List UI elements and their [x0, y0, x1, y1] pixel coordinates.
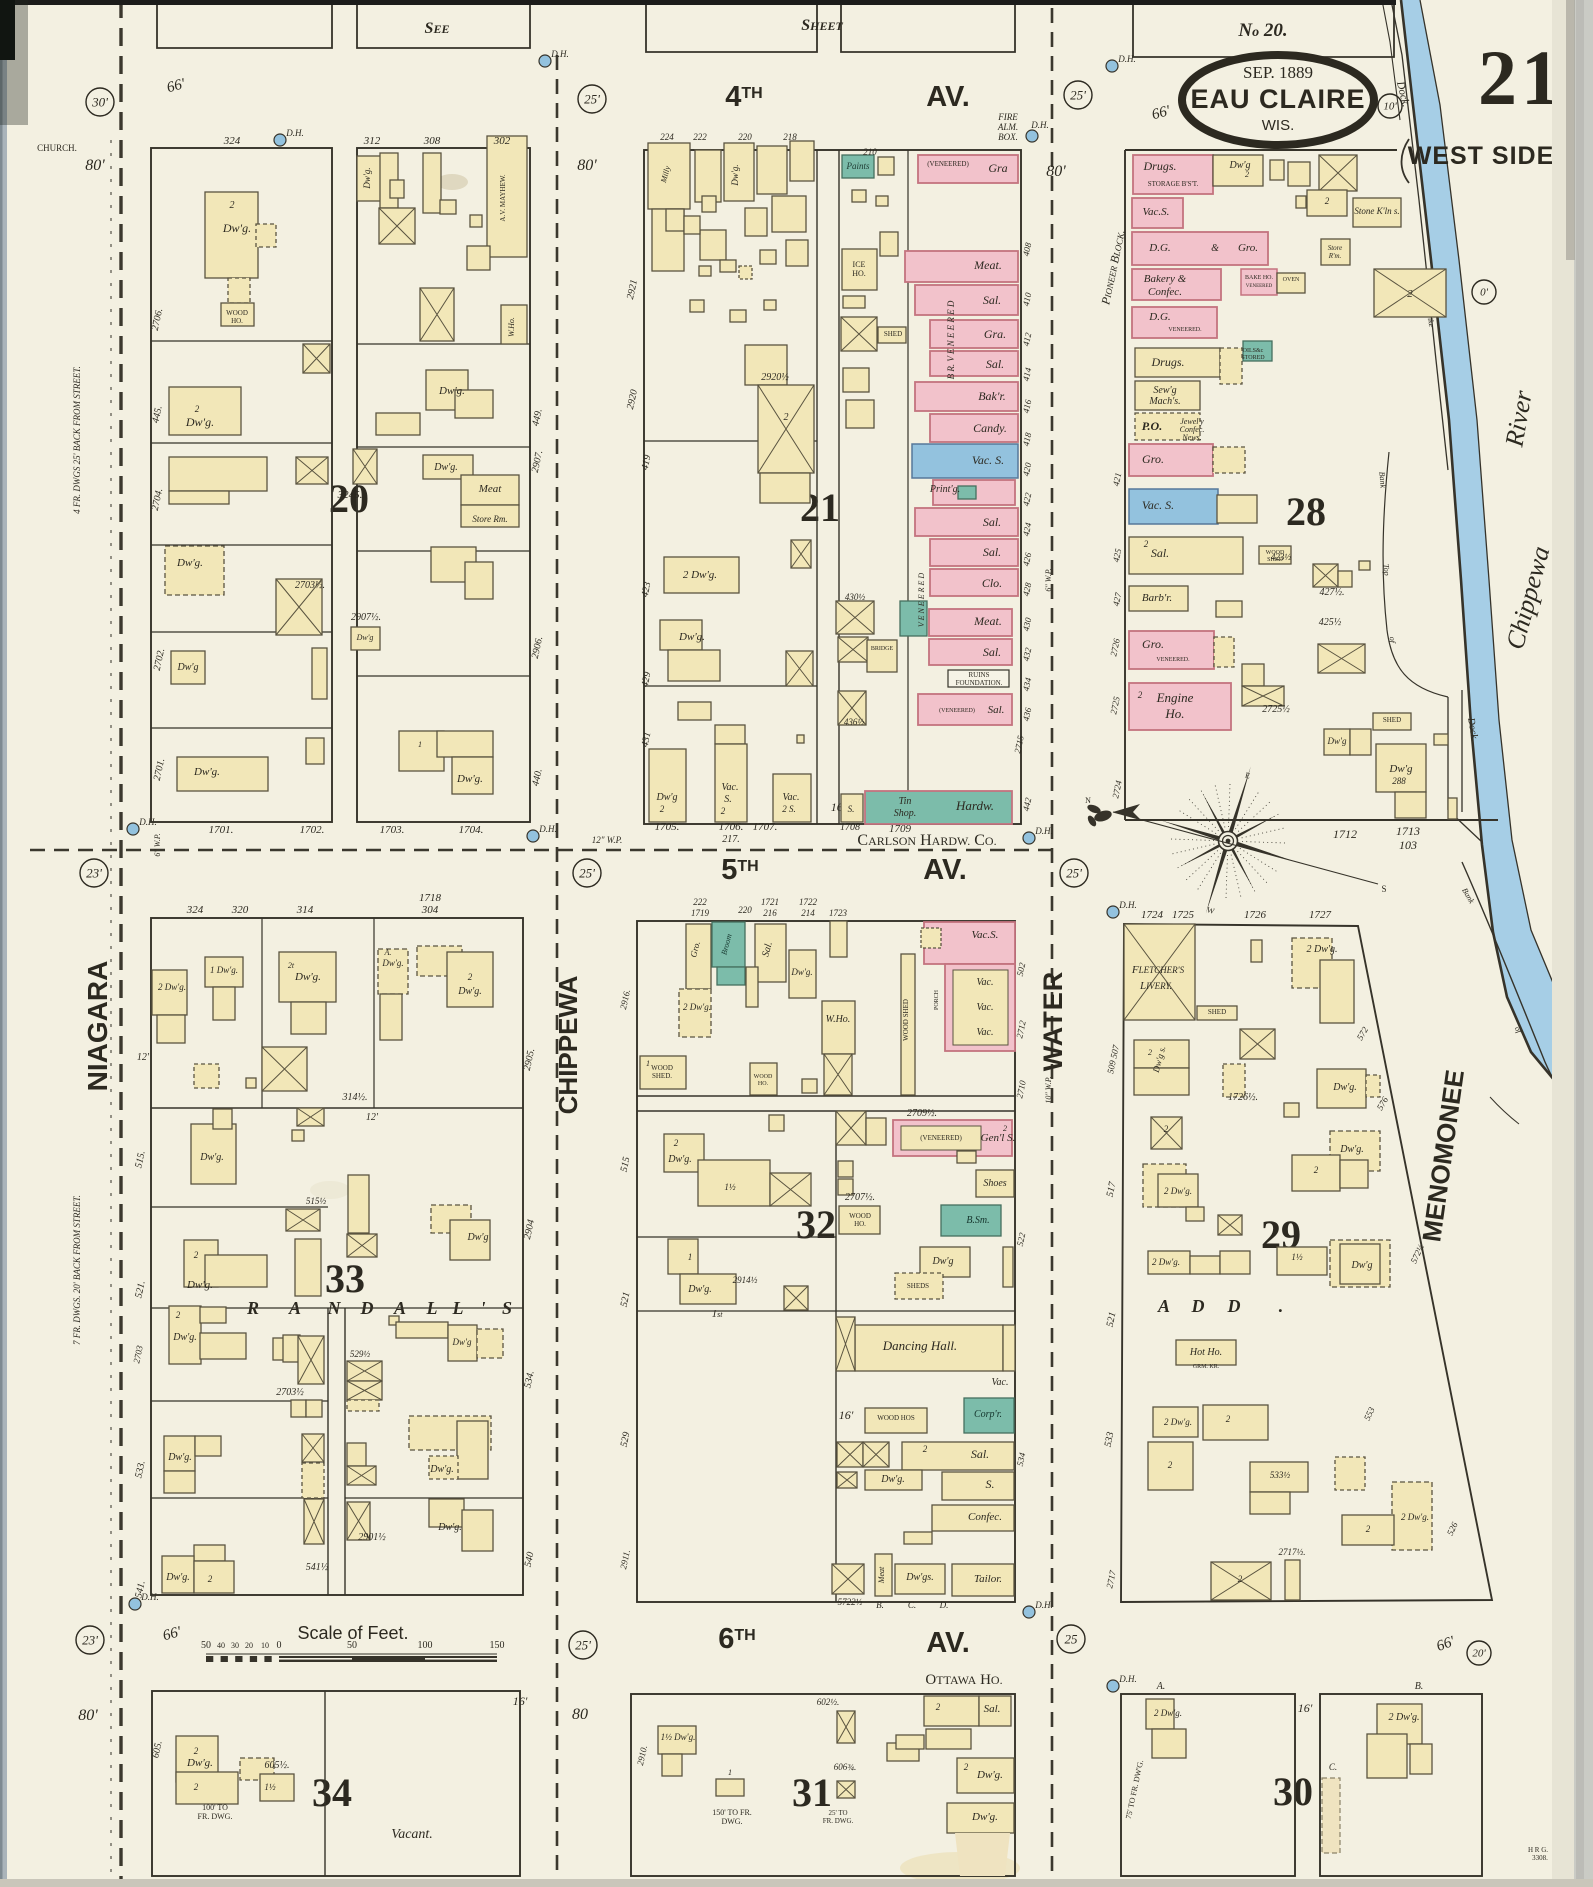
svg-text:288: 288 [1392, 776, 1406, 786]
svg-text:1 Dw'g.: 1 Dw'g. [210, 965, 238, 975]
svg-text:541½: 541½ [306, 1562, 329, 1573]
svg-text:V E N E E R E D: V E N E E R E D [917, 573, 926, 628]
svg-text:324: 324 [186, 904, 204, 916]
svg-text:AV.: AV. [926, 81, 970, 113]
svg-text:1706.: 1706. [719, 821, 744, 833]
svg-text:S.: S. [986, 1477, 995, 1491]
svg-text:WOOD: WOOD [849, 1212, 871, 1220]
svg-text:1: 1 [418, 740, 422, 749]
svg-text:12': 12' [366, 1112, 379, 1123]
svg-text:Engine: Engine [1156, 690, 1194, 705]
svg-text:23': 23' [86, 865, 102, 880]
svg-text:1723: 1723 [829, 908, 848, 918]
svg-text:Clo.: Clo. [982, 576, 1002, 590]
svg-text:N: N [1085, 796, 1091, 805]
svg-text:Sal.: Sal. [984, 1703, 1001, 1715]
svg-text:FIRE: FIRE [997, 112, 1018, 122]
svg-text:B R. V E N E E R E D: B R. V E N E E R E D [946, 300, 956, 379]
svg-text:150' TO FR.: 150' TO FR. [712, 1808, 752, 1817]
svg-text:2: 2 [230, 200, 235, 211]
svg-text:10" W.P.: 10" W.P. [1044, 1076, 1053, 1103]
svg-text:10: 10 [261, 1641, 269, 1650]
svg-text:2 Dw'g.: 2 Dw'g. [1306, 944, 1337, 955]
svg-text:Sal.: Sal. [1151, 546, 1169, 560]
svg-text:33: 33 [325, 1256, 365, 1301]
svg-text:1725: 1725 [1172, 909, 1195, 921]
svg-text:40: 40 [217, 1641, 225, 1650]
svg-text:2: 2 [784, 412, 789, 423]
svg-text:Vac.: Vac. [977, 1027, 994, 1038]
svg-text:222: 222 [693, 132, 707, 142]
svg-text:214: 214 [801, 908, 815, 918]
svg-text:SHED: SHED [1383, 716, 1401, 724]
svg-text:25': 25' [1066, 865, 1082, 880]
svg-text:304: 304 [421, 904, 439, 916]
svg-text:No 20.: No 20. [1237, 20, 1287, 41]
svg-text:WOOD: WOOD [226, 309, 248, 317]
svg-text:VENEERED: VENEERED [1246, 284, 1273, 289]
svg-text:B.Sm.: B.Sm. [966, 1215, 989, 1226]
svg-text:S: S [1381, 884, 1386, 894]
svg-text:Vac.: Vac. [722, 782, 739, 793]
svg-text:VENEERED.: VENEERED. [1168, 327, 1202, 333]
svg-text:2717½.: 2717½. [1279, 1547, 1306, 1557]
svg-text:10': 10' [1383, 101, 1397, 113]
svg-text:308: 308 [423, 135, 441, 147]
svg-text:Dancing Hall.: Dancing Hall. [882, 1338, 957, 1353]
svg-text:12': 12' [137, 1052, 150, 1063]
svg-text:2: 2 [964, 1762, 969, 1772]
svg-text:Dw'g.: Dw'g. [172, 1332, 197, 1343]
svg-text:Dw'g: Dw'g [1350, 1260, 1372, 1271]
svg-text:Dw'g.: Dw'g. [667, 1154, 692, 1165]
svg-text:Shop.: Shop. [894, 808, 917, 819]
svg-text:16': 16' [839, 1408, 854, 1422]
svg-text:2: 2 [1407, 288, 1413, 300]
svg-text:2: 2 [1138, 690, 1143, 700]
svg-text:S.: S. [848, 804, 855, 814]
svg-text:Vac.: Vac. [977, 977, 994, 988]
svg-text:PORCH: PORCH [934, 989, 940, 1010]
svg-text:RUINS: RUINS [968, 671, 989, 679]
svg-text:302: 302 [493, 135, 511, 147]
svg-text:Sal.: Sal. [983, 515, 1001, 529]
svg-text:Sal.: Sal. [983, 293, 1001, 307]
svg-text:Meat.: Meat. [973, 614, 1002, 628]
svg-text:D.H.: D.H. [1118, 900, 1137, 910]
svg-text:3308.: 3308. [1532, 1854, 1548, 1862]
svg-text:1704.: 1704. [459, 824, 484, 836]
svg-text:32: 32 [796, 1202, 836, 1247]
svg-text:Print'g.: Print'g. [929, 484, 960, 495]
svg-text:2: 2 [1168, 1460, 1173, 1470]
svg-text:Dw'g.: Dw'g. [456, 773, 483, 785]
svg-text:2709½.: 2709½. [907, 1108, 937, 1119]
svg-text:WOOD: WOOD [651, 1064, 673, 1072]
svg-text:427½.: 427½. [1320, 587, 1345, 598]
svg-text:A.V. MAYHEW.: A.V. MAYHEW. [499, 174, 507, 221]
svg-text:LIVERY.: LIVERY. [1139, 980, 1172, 992]
svg-text:D.H.: D.H. [1118, 1674, 1137, 1684]
svg-text:2: 2 [1245, 170, 1249, 179]
svg-text:ICE: ICE [853, 260, 866, 269]
svg-text:25' TO: 25' TO [828, 1809, 847, 1817]
svg-text:R'm.: R'm. [1328, 252, 1342, 260]
svg-text:425½: 425½ [1319, 617, 1342, 628]
svg-text:2: 2 [195, 404, 200, 414]
svg-text:Dw'g.: Dw'g. [429, 1464, 454, 1475]
svg-text:Dw'g.: Dw'g. [437, 1522, 462, 1533]
svg-text:Bank: Bank [1377, 471, 1387, 489]
svg-text:2: 2 [721, 806, 726, 816]
svg-text:Dw'gs.: Dw'gs. [905, 1572, 933, 1583]
svg-text:80': 80' [1046, 163, 1066, 180]
svg-text:12" W.P.: 12" W.P. [592, 835, 623, 845]
svg-text:2 Dw'g.: 2 Dw'g. [1154, 1708, 1182, 1718]
svg-text:2: 2 [194, 1746, 199, 1756]
svg-text:2: 2 [194, 1782, 199, 1792]
svg-text:Vacant.: Vacant. [391, 1827, 433, 1842]
svg-text:B.: B. [1415, 1681, 1424, 1692]
svg-text:Dw'g.: Dw'g. [185, 415, 214, 429]
svg-text:2: 2 [1325, 196, 1330, 206]
svg-text:Vac.: Vac. [977, 1002, 994, 1013]
svg-text:0: 0 [277, 1640, 282, 1651]
svg-text:CHIPPEWA: CHIPPEWA [553, 975, 583, 1114]
svg-text:Dw'g.: Dw'g. [165, 1572, 190, 1583]
svg-text:(VENEERED): (VENEERED) [920, 1134, 962, 1142]
svg-text:NIAGARA: NIAGARA [82, 961, 113, 1092]
svg-text:210: 210 [863, 147, 877, 157]
svg-text:25: 25 [1065, 1631, 1079, 1646]
svg-text:2: 2 [674, 1138, 679, 1148]
svg-text:Hardw.: Hardw. [955, 798, 994, 813]
svg-text:20: 20 [245, 1641, 253, 1650]
svg-text:STORAGE B'S'T.: STORAGE B'S'T. [1148, 180, 1199, 188]
svg-text:80': 80' [85, 157, 105, 174]
svg-text:224: 224 [660, 132, 674, 142]
svg-text:Vac.S.: Vac.S. [972, 929, 999, 941]
svg-text:1703.: 1703. [380, 824, 405, 836]
svg-text:1: 1 [688, 1252, 693, 1262]
svg-text:Ho.: Ho. [1164, 706, 1184, 721]
svg-text:C.: C. [1329, 1762, 1337, 1772]
svg-text:25': 25' [575, 1637, 591, 1652]
svg-text:2: 2 [660, 804, 665, 814]
svg-text:533½: 533½ [1270, 1470, 1291, 1480]
svg-text:OILS&c: OILS&c [1243, 348, 1264, 354]
svg-text:5722½: 5722½ [838, 1597, 863, 1607]
svg-text:Gro.: Gro. [1238, 242, 1258, 254]
svg-text:Corp'r.: Corp'r. [974, 1409, 1002, 1420]
svg-text:1½: 1½ [264, 1782, 276, 1792]
svg-text:EAU CLAIRE: EAU CLAIRE [1190, 84, 1365, 114]
svg-text:VENEERED.: VENEERED. [1156, 657, 1190, 663]
svg-text:1719: 1719 [691, 908, 710, 918]
svg-text:2 S.: 2 S. [782, 804, 796, 814]
svg-text:1705.: 1705. [655, 821, 680, 833]
svg-text:Gen'l S.: Gen'l S. [981, 1132, 1016, 1144]
svg-text:Dw'g.: Dw'g. [167, 1452, 192, 1463]
svg-text:Dw'g: Dw'g [1388, 763, 1413, 775]
svg-text:HO.: HO. [852, 269, 866, 278]
svg-text:Sal.: Sal. [983, 545, 1001, 559]
svg-text:Meat: Meat [478, 483, 503, 495]
svg-text:D.H.: D.H. [1034, 1600, 1053, 1610]
svg-text:Tailor.: Tailor. [974, 1573, 1002, 1585]
svg-text:6" W.P.: 6" W.P. [153, 833, 162, 856]
svg-text:2: 2 [1238, 1574, 1243, 1584]
svg-text:1722: 1722 [799, 897, 818, 907]
svg-text:OTTAWA HO.: OTTAWA HO. [925, 1672, 1002, 1688]
svg-text:100: 100 [418, 1640, 433, 1651]
svg-text:Sal.: Sal. [971, 1447, 989, 1461]
svg-text:103: 103 [1399, 838, 1417, 852]
svg-text:Bakery &: Bakery & [1144, 273, 1187, 285]
svg-text:2703½: 2703½ [276, 1387, 304, 1398]
svg-text:1726½.: 1726½. [1228, 1092, 1258, 1103]
svg-text:Drugs.: Drugs. [1142, 159, 1176, 173]
svg-text:6" W.P.: 6" W.P. [1044, 568, 1053, 591]
svg-text:436½: 436½ [844, 717, 865, 727]
svg-text:Dw'g.: Dw'g. [438, 385, 465, 397]
svg-text:Tin: Tin [899, 796, 912, 807]
svg-text:2: 2 [194, 1250, 199, 1260]
svg-text:D.H.: D.H. [285, 128, 304, 138]
svg-text:218: 218 [783, 132, 797, 142]
svg-text:2707½.: 2707½. [845, 1192, 875, 1203]
svg-text:Candy.: Candy. [973, 421, 1007, 435]
svg-text:2: 2 [1003, 1124, 1007, 1133]
svg-text:Dw'g: Dw'g [356, 633, 374, 642]
svg-text:D.G.: D.G. [1148, 242, 1170, 254]
svg-text:Paints: Paints [845, 161, 869, 171]
svg-text:AV.: AV. [926, 1627, 970, 1659]
svg-text:1726: 1726 [1244, 909, 1267, 921]
svg-text:Dw'g.: Dw'g. [199, 1152, 224, 1163]
svg-text:217.: 217. [722, 834, 740, 845]
svg-text:2907½.: 2907½. [351, 612, 381, 623]
svg-text:CARLSON HARDW. CO.: CARLSON HARDW. CO. [857, 832, 996, 849]
svg-text:2 Dw'g.: 2 Dw'g. [158, 982, 186, 992]
svg-text:34: 34 [312, 1770, 352, 1815]
svg-text:Dw'g.: Dw'g. [880, 1474, 905, 1485]
svg-text:(VENEERED): (VENEERED) [927, 160, 969, 168]
svg-text:1½: 1½ [1291, 1252, 1303, 1262]
svg-text:A: A [1157, 1296, 1170, 1316]
svg-text:2914½: 2914½ [733, 1275, 758, 1285]
svg-text:ALM.: ALM. [997, 122, 1018, 132]
svg-text:2725½: 2725½ [1262, 704, 1290, 715]
svg-text:SHEET: SHEET [801, 17, 843, 34]
svg-text:2 Dw'g.: 2 Dw'g. [1388, 1712, 1419, 1723]
svg-text:HO.: HO. [758, 1081, 769, 1087]
svg-text:Stone K'ln s.: Stone K'ln s. [1354, 206, 1399, 216]
svg-text:2: 2 [176, 1310, 181, 1320]
svg-text:Gro.: Gro. [1142, 637, 1164, 651]
svg-text:100' TO: 100' TO [202, 1803, 228, 1812]
svg-text:602½.: 602½. [817, 1697, 840, 1707]
svg-text:D.H.: D.H. [1117, 54, 1136, 64]
svg-text:Dw'g: Dw'g [931, 1256, 953, 1267]
svg-text:Meat: Meat [877, 1566, 886, 1584]
svg-text:1701.: 1701. [209, 824, 234, 836]
svg-text:222: 222 [693, 897, 707, 907]
svg-text:515½: 515½ [306, 1196, 327, 1206]
svg-text:HO.: HO. [231, 317, 243, 325]
svg-text:31: 31 [792, 1770, 832, 1815]
svg-text:Gra.: Gra. [984, 327, 1006, 341]
svg-text:2: 2 [1314, 1165, 1319, 1175]
svg-text:Dw'g.: Dw'g. [457, 986, 482, 997]
svg-text:1707.: 1707. [753, 821, 778, 833]
svg-text:2: 2 [1366, 1524, 1371, 1534]
svg-text:Dw'g.: Dw'g. [976, 1769, 1003, 1781]
svg-text:Dw'g.: Dw'g. [186, 1279, 213, 1291]
svg-text:FLETCHER'S: FLETCHER'S [1131, 964, 1185, 976]
svg-text:606¾.: 606¾. [834, 1762, 857, 1772]
svg-text:Dw'g.: Dw'g. [1332, 1082, 1357, 1093]
svg-text:1: 1 [646, 1059, 650, 1068]
svg-text:Vac. S.: Vac. S. [972, 453, 1004, 467]
svg-text:2: 2 [208, 1574, 213, 1584]
svg-text:Mach's.: Mach's. [1148, 396, 1180, 407]
svg-text:A.: A. [1156, 1681, 1166, 1692]
svg-text:WATER: WATER [1038, 971, 1068, 1072]
svg-text:529½: 529½ [350, 1349, 371, 1359]
svg-text:1724: 1724 [1141, 909, 1164, 921]
svg-text:4 FR. DWGS 25' BACK FROM STREE: 4 FR. DWGS 25' BACK FROM STREET. [72, 366, 82, 514]
svg-text:0': 0' [1480, 287, 1489, 299]
svg-text:D: D [1191, 1296, 1205, 1316]
svg-text:D.H.: D.H. [550, 49, 569, 59]
svg-text:Dw'g.: Dw'g. [1339, 1144, 1364, 1155]
svg-text:20': 20' [1472, 1648, 1486, 1660]
svg-text:Dw'g.: Dw'g. [381, 958, 403, 968]
svg-text:D.H.: D.H. [538, 824, 557, 834]
svg-text:WOOD: WOOD [754, 1074, 773, 1080]
svg-text:Gra: Gra [988, 161, 1007, 175]
svg-text:Dw'g.: Dw'g. [294, 971, 321, 983]
svg-text:FR. DWG.: FR. DWG. [198, 1812, 233, 1821]
svg-text:GRM. KR.: GRM. KR. [1193, 1364, 1220, 1370]
svg-text:2t: 2t [288, 961, 295, 970]
svg-text:30: 30 [231, 1641, 239, 1650]
svg-text:80: 80 [572, 1706, 588, 1723]
svg-text:25': 25' [579, 865, 595, 880]
svg-text:30': 30' [91, 94, 108, 109]
svg-text:Dw'g.: Dw'g. [176, 557, 203, 569]
svg-text:314½.: 314½. [342, 1092, 368, 1103]
svg-text:Bak'r.: Bak'r. [978, 389, 1006, 403]
svg-text:SEE: SEE [425, 20, 450, 37]
svg-text:Dw'g.: Dw'g. [687, 1284, 712, 1295]
svg-text:.: . [1279, 1296, 1284, 1316]
svg-text:Dw'g.: Dw'g. [433, 462, 458, 473]
svg-text:FR. DWG.: FR. DWG. [823, 1817, 854, 1825]
svg-text:1: 1 [728, 1768, 732, 1777]
svg-text:WIS.: WIS. [1262, 117, 1295, 134]
svg-text:1718: 1718 [419, 892, 442, 904]
svg-text:80': 80' [78, 1707, 98, 1724]
svg-text:Dw'g: Dw'g [1327, 736, 1347, 746]
svg-text:D.H.: D.H. [1034, 826, 1053, 836]
svg-text:2703½.: 2703½. [295, 580, 325, 591]
svg-text:80': 80' [577, 157, 597, 174]
svg-text:25': 25' [584, 91, 600, 106]
svg-text:1702.: 1702. [300, 824, 325, 836]
svg-text:D.G.: D.G. [1148, 311, 1170, 323]
svg-text:1727: 1727 [1309, 909, 1332, 921]
svg-text:605½.: 605½. [265, 1760, 290, 1771]
svg-text:HO.: HO. [854, 1220, 866, 1228]
svg-text:2: 2 [1164, 1124, 1169, 1134]
svg-text:B.: B. [876, 1600, 884, 1610]
svg-text:&: & [1211, 243, 1219, 254]
svg-text:Vac.: Vac. [992, 1377, 1009, 1388]
svg-text:Barb'r.: Barb'r. [1142, 592, 1172, 604]
svg-text:150: 150 [490, 1640, 505, 1651]
svg-text:50: 50 [347, 1640, 357, 1651]
svg-text:320: 320 [231, 904, 249, 916]
svg-text:Dw'g.: Dw'g. [730, 164, 740, 186]
svg-text:SHED: SHED [1208, 1008, 1226, 1016]
svg-text:S.: S. [724, 794, 732, 805]
svg-text:30: 30 [1273, 1769, 1313, 1814]
svg-text:2: 2 [936, 1702, 941, 1712]
svg-text:2 Dw'g.: 2 Dw'g. [683, 569, 717, 581]
svg-text:D.H.: D.H. [1030, 120, 1049, 130]
svg-text:P.O.: P.O. [1142, 419, 1162, 433]
svg-text:Drugs.: Drugs. [1150, 355, 1184, 369]
svg-text:SEP. 1889: SEP. 1889 [1243, 63, 1313, 82]
svg-text:2 Dw'g.: 2 Dw'g. [1401, 1512, 1429, 1522]
svg-text:16': 16' [1298, 1701, 1313, 1715]
svg-text:423½: 423½ [1271, 552, 1292, 562]
svg-text:Meat.: Meat. [973, 258, 1002, 272]
svg-text:28: 28 [1286, 489, 1326, 534]
svg-text:C.: C. [908, 1600, 916, 1610]
svg-text:1½ Dw'g.: 1½ Dw'g. [661, 1732, 696, 1742]
svg-text:7 FR. DWGS. 20' BACK FROM STRE: 7 FR. DWGS. 20' BACK FROM STREET. [72, 1195, 82, 1345]
svg-text:BRIDGE: BRIDGE [871, 646, 894, 652]
svg-text:Vac. S.: Vac. S. [1142, 498, 1174, 512]
svg-text:H R G.: H R G. [1528, 1846, 1548, 1854]
svg-text:Dw'g.: Dw'g. [222, 221, 251, 235]
svg-text:1713: 1713 [1396, 824, 1420, 838]
svg-text:1721: 1721 [761, 897, 779, 907]
svg-text:1½: 1½ [724, 1182, 736, 1192]
svg-text:Dw'g.: Dw'g. [193, 766, 220, 778]
svg-text:2: 2 [923, 1444, 928, 1454]
svg-text:Dw'g: Dw'g [466, 1232, 488, 1243]
svg-text:WEST SIDE: WEST SIDE [1408, 142, 1555, 170]
svg-text:312: 312 [363, 135, 381, 147]
svg-text:CHURCH.: CHURCH. [37, 143, 77, 153]
svg-text:Dw'g.: Dw'g. [362, 167, 372, 189]
svg-text:DWG.: DWG. [721, 1817, 742, 1826]
svg-text:Top: Top [1381, 564, 1391, 576]
svg-text:Dw'g.: Dw'g. [790, 967, 812, 977]
svg-text:Sal.: Sal. [983, 645, 1001, 659]
svg-text:WOOD SHED: WOOD SHED [902, 999, 910, 1041]
svg-text:Shoes: Shoes [983, 1178, 1006, 1189]
svg-text:2 Dw'g.: 2 Dw'g. [1164, 1186, 1192, 1196]
svg-text:2901½: 2901½ [358, 1532, 386, 1543]
svg-text:2 Dw'g.: 2 Dw'g. [683, 1002, 711, 1012]
svg-text:1712: 1712 [1333, 827, 1357, 841]
svg-text:2: 2 [468, 972, 473, 982]
